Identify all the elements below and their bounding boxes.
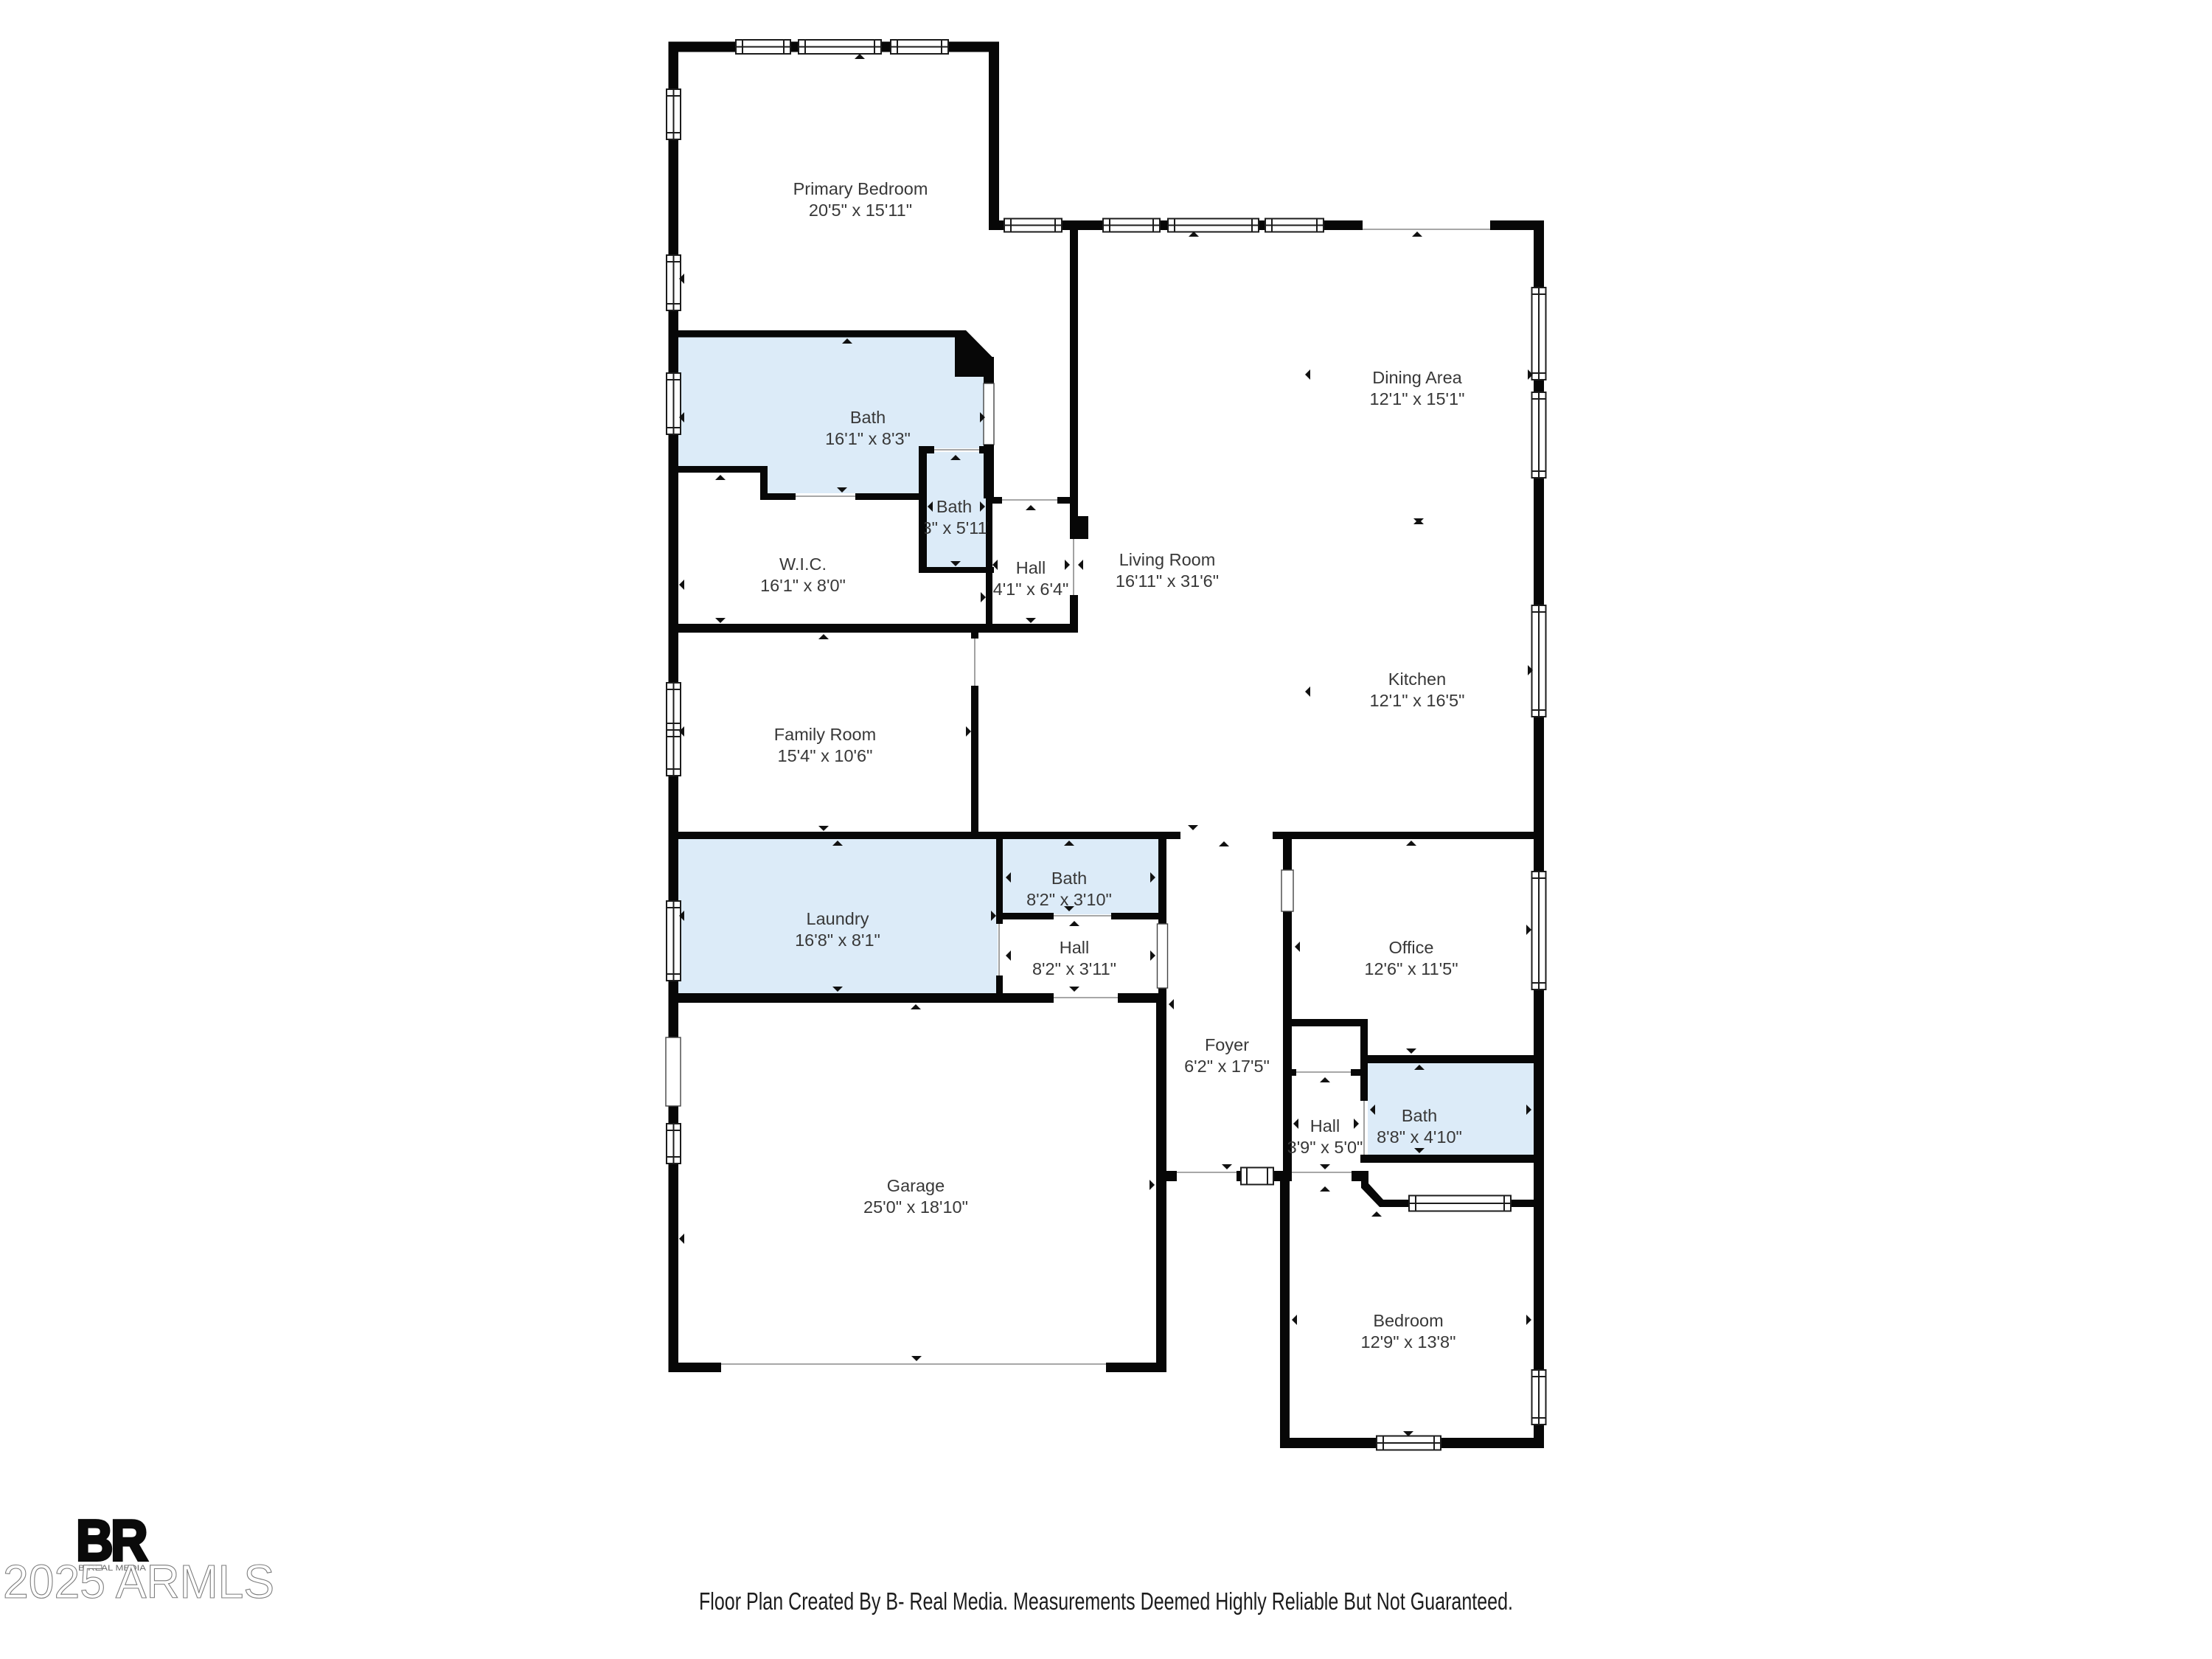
svg-text:Living Room: Living Room [1119,550,1216,569]
svg-text:W.I.C.: W.I.C. [779,554,827,574]
svg-text:12'6" x 11'5": 12'6" x 11'5" [1364,959,1458,978]
svg-text:16'8" x 8'1": 16'8" x 8'1" [795,931,880,950]
svg-text:Dining Area: Dining Area [1372,368,1462,387]
svg-text:Laundry: Laundry [807,909,869,928]
svg-text:Hall: Hall [1016,558,1046,577]
svg-text:Office: Office [1389,938,1434,957]
svg-text:Garage: Garage [887,1176,945,1195]
svg-text:Primary Bedroom: Primary Bedroom [793,179,928,198]
svg-text:12'1" x 16'5": 12'1" x 16'5" [1370,691,1465,710]
svg-text:Family Room: Family Room [774,725,876,744]
svg-text:16'1" x 8'3": 16'1" x 8'3" [825,429,911,448]
svg-text:6'2" x 17'5": 6'2" x 17'5" [1184,1057,1270,1076]
svg-text:Hall: Hall [1310,1116,1340,1135]
svg-text:Bedroom: Bedroom [1373,1311,1443,1330]
svg-text:15'4" x 10'6": 15'4" x 10'6" [778,746,873,765]
svg-text:8'2" x 3'11": 8'2" x 3'11" [1032,959,1116,978]
svg-text:Hall: Hall [1060,938,1089,957]
svg-text:16'1" x 8'0": 16'1" x 8'0" [760,576,846,595]
svg-text:8'8" x 4'10": 8'8" x 4'10" [1377,1127,1462,1147]
svg-text:3'9" x 5'0": 3'9" x 5'0" [1287,1138,1363,1157]
svg-text:2025 ARMLS: 2025 ARMLS [3,1555,274,1608]
svg-text:Kitchen: Kitchen [1388,669,1446,689]
svg-text:16'11" x 31'6": 16'11" x 31'6" [1116,571,1219,591]
svg-text:8'2" x 3'10": 8'2" x 3'10" [1026,890,1112,909]
svg-text:4'1" x 6'4": 4'1" x 6'4" [993,580,1069,599]
svg-text:Bath: Bath [1051,869,1087,888]
svg-text:Floor Plan Created By B- Real: Floor Plan Created By B- Real Media. Mea… [699,1587,1513,1615]
svg-text:Bath: Bath [1402,1106,1437,1125]
svg-text:12'9" x 13'8": 12'9" x 13'8" [1361,1332,1456,1352]
svg-text:12'1" x 15'1": 12'1" x 15'1" [1370,389,1465,408]
svg-text:20'5" x 15'11": 20'5" x 15'11" [809,201,912,220]
svg-text:Bath: Bath [850,408,886,427]
svg-text:25'0" x 18'10": 25'0" x 18'10" [863,1197,968,1217]
svg-text:Bath: Bath [936,497,972,516]
svg-text:Foyer: Foyer [1205,1035,1249,1054]
